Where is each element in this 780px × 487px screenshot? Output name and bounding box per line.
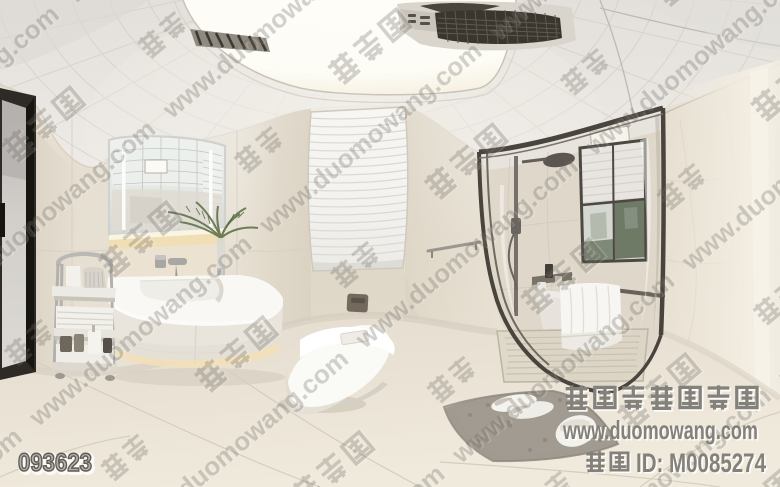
svg-text:ID: M0085274: ID: M0085274: [636, 448, 766, 478]
svg-text:093623: 093623: [18, 449, 92, 477]
svg-text:www.duomowang.com: www.duomowang.com: [562, 415, 758, 445]
